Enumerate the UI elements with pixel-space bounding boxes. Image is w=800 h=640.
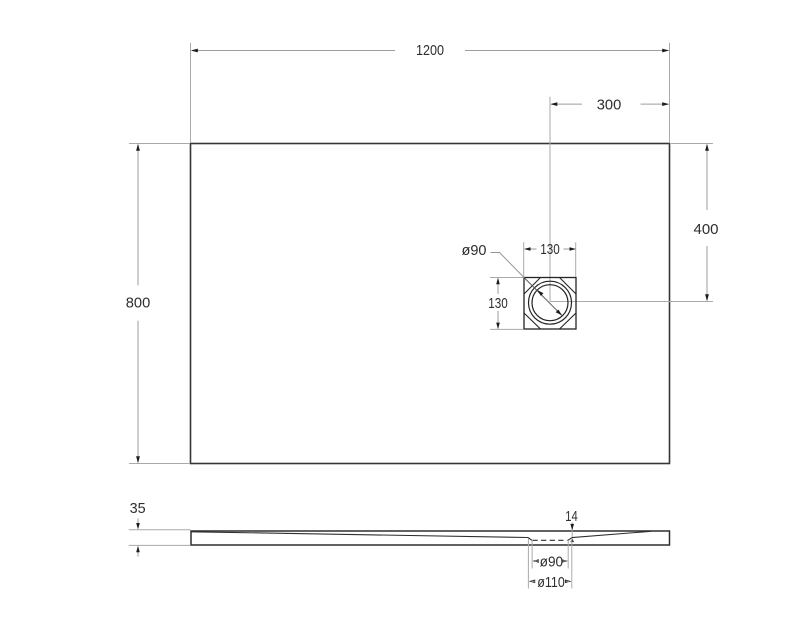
svg-text:800: 800	[126, 295, 151, 312]
svg-text:400: 400	[694, 221, 719, 238]
svg-text:300: 300	[597, 97, 622, 114]
svg-text:130: 130	[540, 241, 560, 258]
svg-text:1200: 1200	[416, 42, 444, 59]
svg-text:35: 35	[130, 500, 146, 517]
svg-text:14: 14	[565, 508, 578, 525]
svg-text:ø90: ø90	[462, 242, 487, 259]
svg-text:ø110: ø110	[537, 574, 565, 591]
svg-text:130: 130	[488, 295, 508, 312]
svg-text:ø90: ø90	[540, 554, 564, 571]
